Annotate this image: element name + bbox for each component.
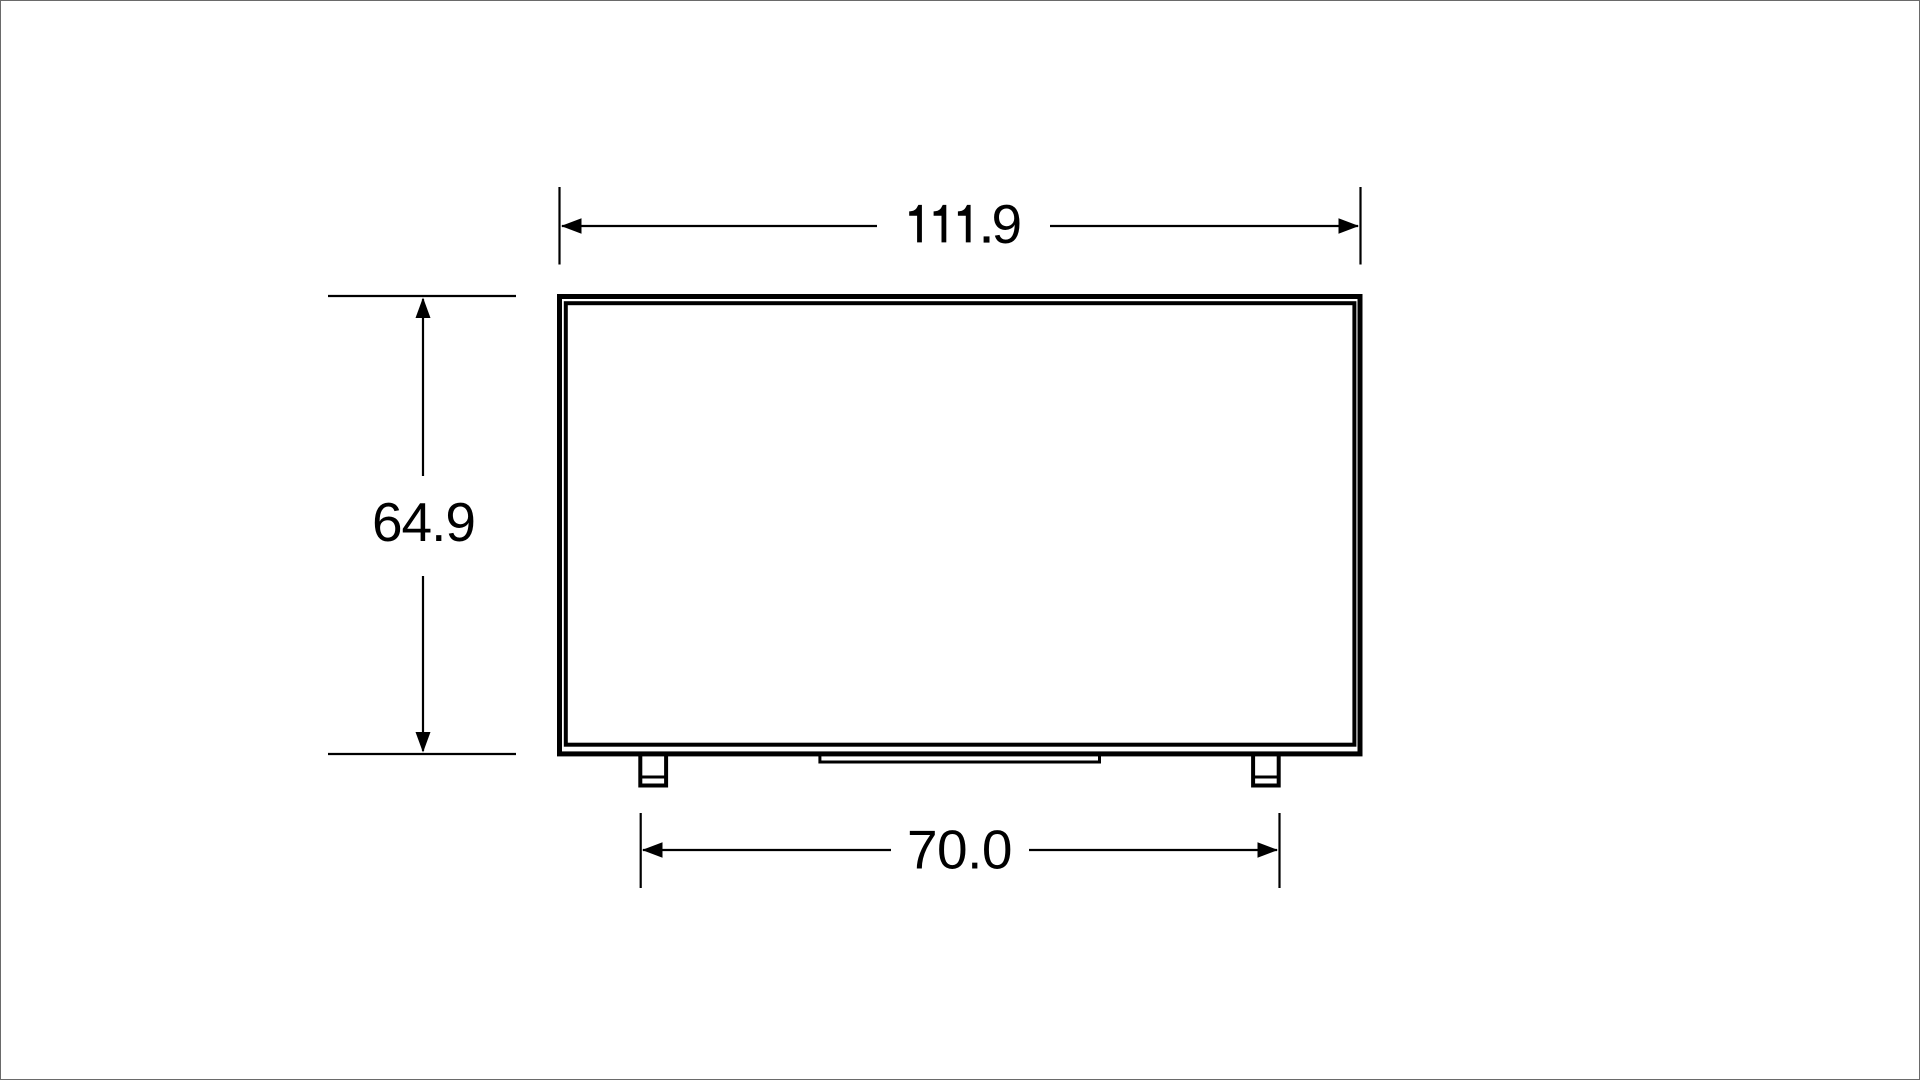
svg-text:70.0: 70.0	[907, 819, 1012, 881]
svg-text:64.9: 64.9	[372, 491, 475, 553]
svg-text:9: 9	[992, 193, 1023, 255]
